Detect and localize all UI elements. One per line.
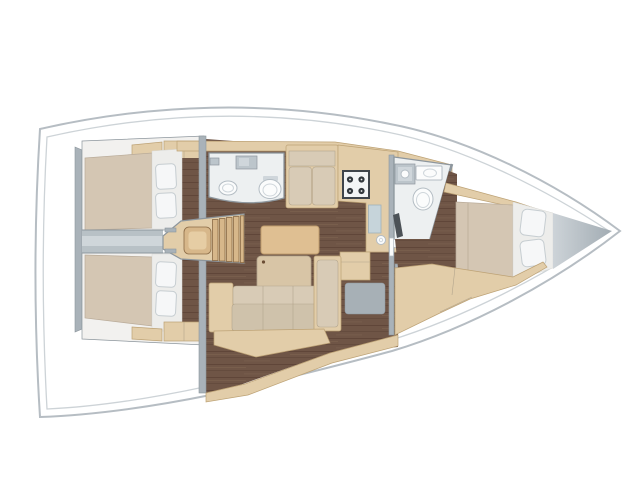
aft-cabin-starboard-shelf-wedge xyxy=(132,327,162,341)
stove-burner-cap xyxy=(349,190,351,192)
aft-head-shelf xyxy=(210,158,219,165)
galley-cabinet xyxy=(340,252,370,280)
aft-bulkhead-lower xyxy=(199,258,206,393)
stern-bulkhead xyxy=(75,147,82,332)
saloon-settee-top xyxy=(286,145,338,208)
stove-burner-cap xyxy=(349,179,351,181)
aft-cabin-starboard-bed xyxy=(85,255,152,326)
aft-cabin-starboard-floor-strip xyxy=(182,252,199,324)
forward-head-sink-basin xyxy=(401,170,409,178)
forward-cabin-doorway xyxy=(390,238,394,256)
sofa-armrest-cabinet xyxy=(209,283,233,332)
stove-burner-cap xyxy=(361,179,363,181)
settee-backrest xyxy=(289,151,335,166)
settee-cushion-left xyxy=(289,167,312,205)
nav-seat xyxy=(345,283,385,314)
aft-cabin-starboard xyxy=(82,252,204,345)
sofa-side-bench-cushion xyxy=(317,260,338,327)
forward-head-toilet xyxy=(413,188,433,210)
aft-head-cabinet-basin xyxy=(239,158,249,166)
companionway-step xyxy=(234,217,240,263)
saloon-chair-button xyxy=(262,260,265,263)
corridor-runner xyxy=(82,236,163,246)
yacht-floorplan-figure: Sailing yacht interior floor plan (top-d… xyxy=(0,0,640,480)
aft-cabin-starboard-pillow-1 xyxy=(155,261,176,287)
forward-cabin-pillow-1 xyxy=(520,209,547,238)
galley-stove xyxy=(343,171,369,198)
aft-corridor xyxy=(82,230,163,253)
galley-faucet xyxy=(377,236,386,245)
companionway-step xyxy=(213,220,219,261)
yacht-floorplan-page: Sailing yacht interior floor plan (top-d… xyxy=(0,0,640,480)
aft-cabin-port-bed xyxy=(85,153,152,230)
settee-cushion-right xyxy=(313,167,336,205)
companionway-hinge xyxy=(165,249,176,253)
forward-head-counter xyxy=(416,166,442,180)
companionway-step xyxy=(241,216,245,263)
sofa-backrest xyxy=(233,286,323,306)
companionway-step xyxy=(227,218,233,262)
saloon-table xyxy=(261,226,319,254)
aft-cabin-port-pillow-1 xyxy=(155,163,176,189)
aft-bulkhead-upper xyxy=(199,136,206,225)
aft-cabin-starboard-pillow-2 xyxy=(155,290,176,316)
aft-cabin-port-pillow-2 xyxy=(155,192,176,218)
galley-sink xyxy=(369,205,382,233)
companionway-lower-step-top xyxy=(189,232,207,250)
sofa-seat xyxy=(232,304,324,331)
stove-burner-cap xyxy=(361,190,363,192)
aft-head-sink xyxy=(219,181,237,195)
aft-head xyxy=(209,153,284,203)
forward-cabin-bench xyxy=(395,262,547,335)
companionway-step xyxy=(220,219,226,262)
saloon-chair xyxy=(257,256,311,290)
companionway-hinge xyxy=(165,228,176,232)
